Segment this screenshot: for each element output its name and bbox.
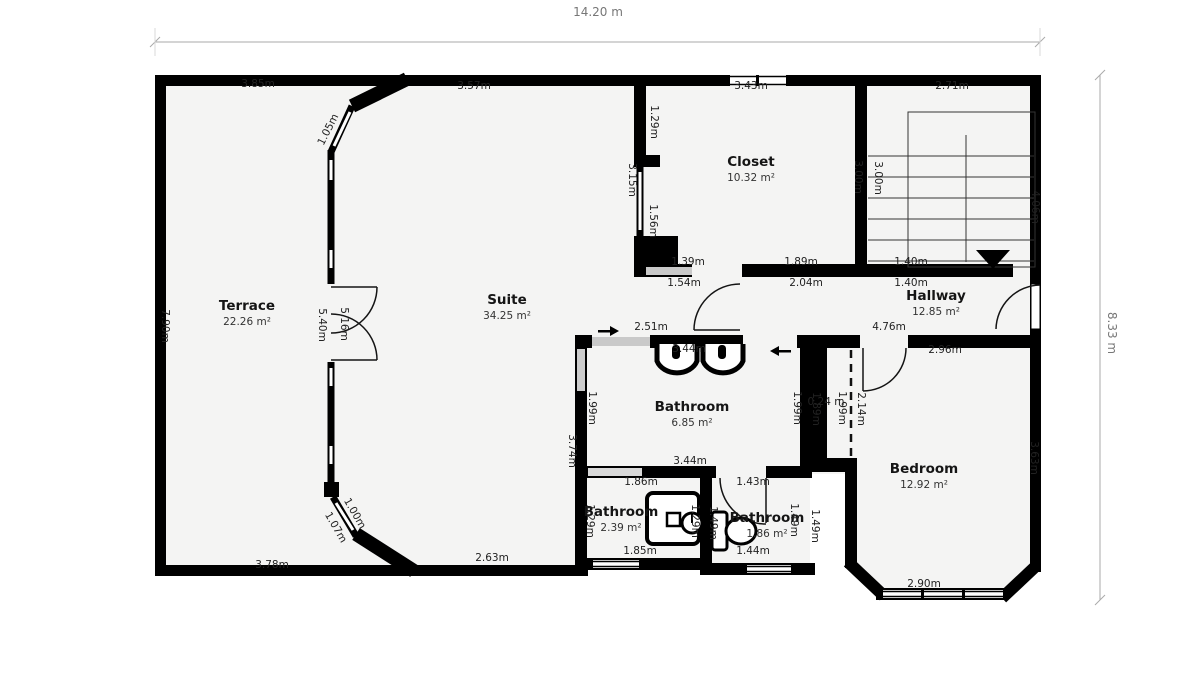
dimension-label: 1.49m <box>788 503 800 537</box>
dimension-label: 1.43m <box>736 476 770 488</box>
bedroom-window <box>880 590 1006 598</box>
bathroom2-bottom-window <box>744 565 794 573</box>
dimension-label: 2.71m <box>935 80 969 92</box>
room-area-label: 12.85 m² <box>912 306 960 318</box>
dimension-label: 1.49m <box>809 509 821 543</box>
room-area-label: 34.25 m² <box>483 310 531 322</box>
dimension-label: 1.29m <box>689 504 701 538</box>
dimension-label: 1.89m <box>784 256 818 268</box>
dimension-label: 2.63m <box>475 552 509 564</box>
dimension-label: 1.49m <box>707 506 719 540</box>
dimension-label: 1.40m <box>894 277 928 289</box>
dimension-label: 1.56m <box>647 204 659 238</box>
room-label: Suite <box>487 292 527 308</box>
dimension-label: 3.63m <box>1028 441 1040 475</box>
floor-plan-canvas: Terrace22.26 m²Suite34.25 m²Closet10.32 … <box>0 0 1200 675</box>
dimension-label: 3.78m <box>255 559 289 571</box>
room-label: Bathroom <box>655 399 730 415</box>
dimension-label: 1.29m <box>648 105 660 139</box>
room-label: Terrace <box>219 298 275 314</box>
dimension-label: 1.85m <box>623 545 657 557</box>
dimension-label: 2.90m <box>907 578 941 590</box>
dimension-label: 3.44m <box>673 455 707 467</box>
dimension-label: 1.29m <box>584 504 596 538</box>
dimension-label: 1.99m <box>791 391 803 425</box>
dimension-label: 0.24 m <box>808 396 845 408</box>
dimension-label: 3.44m <box>672 343 706 355</box>
dimension-label: 2.04m <box>789 277 823 289</box>
room-label: Closet <box>727 154 775 170</box>
bathroom-bottom-window <box>590 560 642 568</box>
room-area-label: 6.85 m² <box>671 417 712 429</box>
dimension-label: 4.76m <box>872 321 906 333</box>
dimension-label: 1.40m <box>894 256 928 268</box>
dimension-label: 2.96m <box>928 344 962 356</box>
dimension-label: 14.20 m <box>573 5 623 19</box>
dimension-label: 3.57m <box>457 80 491 92</box>
dimension-label: 7.90m <box>159 309 171 343</box>
dimension-label: 3.00m <box>852 160 864 194</box>
dimension-label: 3.15m <box>626 163 638 197</box>
dimension-label: 1.39m <box>671 256 705 268</box>
room-area-label: 12.92 m² <box>900 479 948 491</box>
dimension-label: 3.85m <box>241 78 275 90</box>
dimension-label: 1.86m <box>624 476 658 488</box>
dimension-label: 3.74m <box>566 434 578 468</box>
dimension-label: 3.00m <box>872 161 884 195</box>
dimension-label: 1.99m <box>586 391 598 425</box>
room-label: Bedroom <box>890 461 958 477</box>
room-label: Hallway <box>906 288 966 304</box>
room-area-label: 2.39 m² <box>600 522 641 534</box>
room-area-label: 10.32 m² <box>727 172 775 184</box>
dimension-label: 3.43m <box>734 80 768 92</box>
dimension-label: 4.06m <box>1029 190 1041 224</box>
room-area-label: 22.26 m² <box>223 316 271 328</box>
dimension-label: 1.44m <box>736 545 770 557</box>
room-area-label: 1.86 m² <box>746 528 787 540</box>
dimension-label: 1.54m <box>667 277 701 289</box>
sink-icon <box>703 344 743 373</box>
dimension-label: 5.16m <box>338 307 350 341</box>
dimension-label: 5.40m <box>316 308 328 342</box>
dimension-label: 8.33 m <box>1105 312 1119 354</box>
dimension-label: 2.14m <box>855 392 867 426</box>
dimension-label: 2.51m <box>634 321 668 333</box>
